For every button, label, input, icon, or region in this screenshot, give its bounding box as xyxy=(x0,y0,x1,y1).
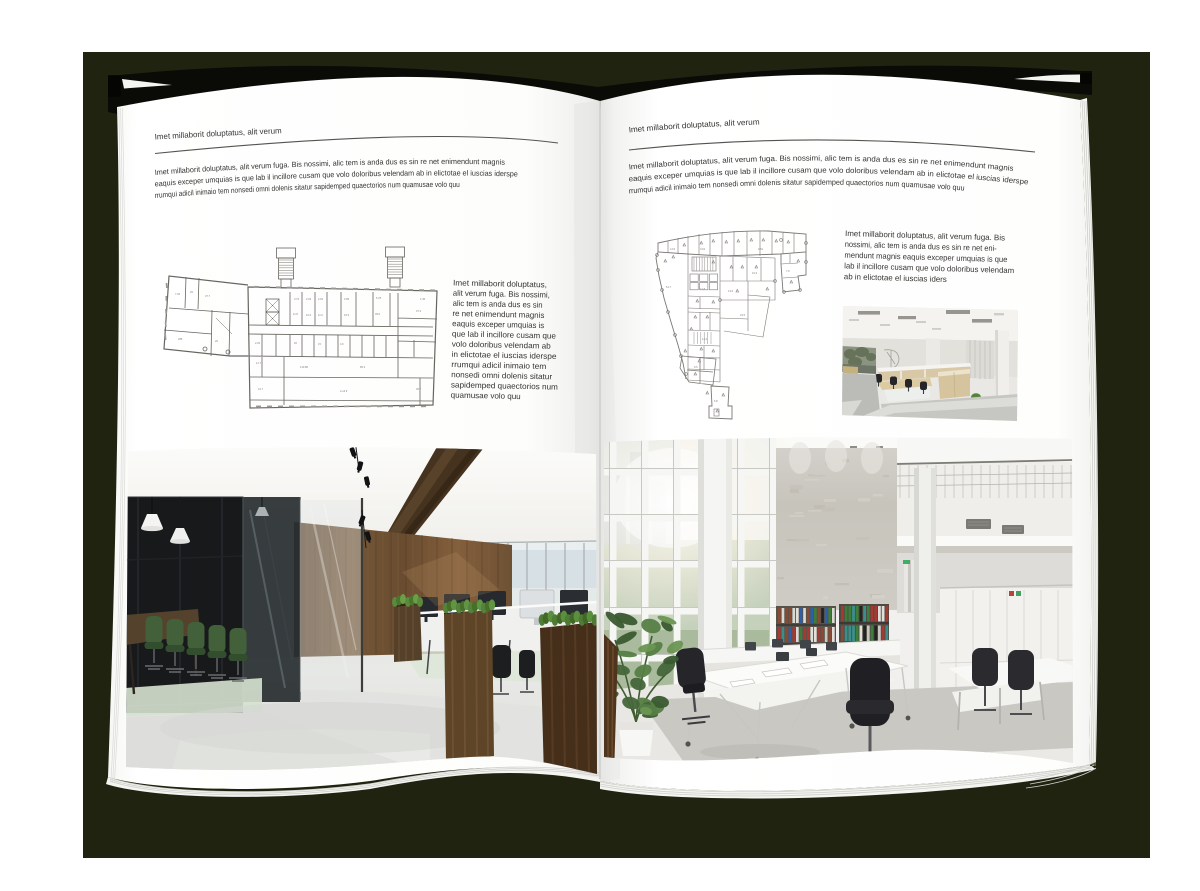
svg-text:6.8: 6.8 xyxy=(714,399,718,403)
svg-text:re net enimendunt magnis: re net enimendunt magnis xyxy=(452,309,544,320)
svg-text:31.7: 31.7 xyxy=(258,387,264,391)
svg-text:9.6: 9.6 xyxy=(694,365,698,369)
svg-text:4.15: 4.15 xyxy=(670,247,676,251)
svg-text:12.8: 12.8 xyxy=(700,287,706,291)
svg-text:7.06: 7.06 xyxy=(175,292,181,296)
svg-text:51.7: 51.7 xyxy=(666,285,672,289)
svg-text:3.81: 3.81 xyxy=(758,247,764,251)
svg-text:10.9: 10.9 xyxy=(752,271,758,275)
svg-text:2-nd fl: 2-nd fl xyxy=(340,389,348,393)
svg-text:14.2: 14.2 xyxy=(702,337,708,341)
svg-text:86.3: 86.3 xyxy=(360,365,366,369)
svg-text:7.9: 7.9 xyxy=(786,269,790,273)
svg-text:140.88: 140.88 xyxy=(300,365,308,369)
svg-text:10.6: 10.6 xyxy=(306,313,312,317)
svg-text:3.99: 3.99 xyxy=(344,297,350,301)
svg-text:37.7: 37.7 xyxy=(205,294,211,298)
svg-text:37.2: 37.2 xyxy=(416,309,422,313)
svg-text:11.6: 11.6 xyxy=(318,313,323,317)
svg-text:4.6: 4.6 xyxy=(340,342,344,346)
svg-text:eaquis exceper umquias is: eaquis exceper umquias is xyxy=(452,319,544,330)
svg-text:30.7: 30.7 xyxy=(416,387,422,391)
svg-text:1.45: 1.45 xyxy=(420,297,426,301)
svg-text:2.92: 2.92 xyxy=(318,297,324,301)
svg-text:12.7: 12.7 xyxy=(256,361,262,365)
svg-text:13.6: 13.6 xyxy=(728,289,734,293)
svg-text:286: 286 xyxy=(178,337,183,341)
svg-text:quamusae volo quu: quamusae volo quu xyxy=(451,391,521,401)
svg-text:11.8: 11.8 xyxy=(293,312,298,316)
svg-text:16.5: 16.5 xyxy=(344,313,350,317)
svg-text:2.93: 2.93 xyxy=(306,297,312,301)
svg-text:alic tem is anda dus es sin: alic tem is anda dus es sin xyxy=(453,299,543,310)
svg-text:24.5: 24.5 xyxy=(740,313,746,317)
svg-text:3.76: 3.76 xyxy=(294,297,300,301)
svg-text:2.26: 2.26 xyxy=(255,341,261,345)
svg-text:5.78: 5.78 xyxy=(376,296,382,300)
svg-text:3.62: 3.62 xyxy=(700,247,706,251)
svg-text:39.6: 39.6 xyxy=(375,312,381,316)
